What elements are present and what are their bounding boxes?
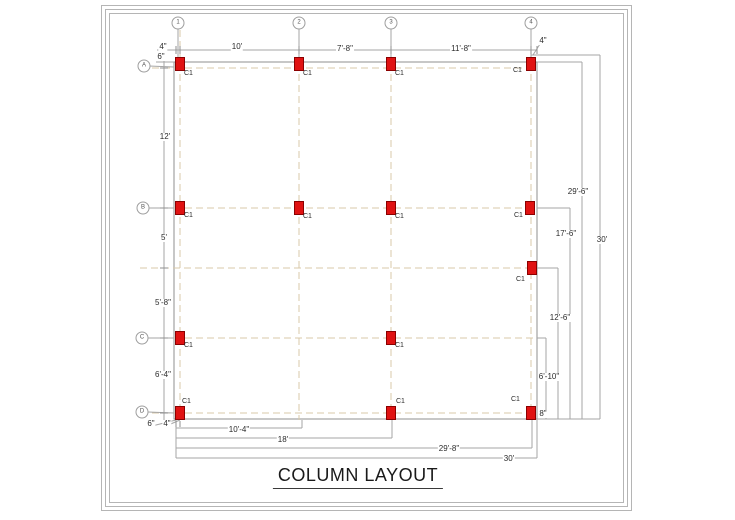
dimension-label-left: 5': [160, 234, 168, 242]
grid-bubble-1: 1: [172, 17, 185, 30]
dimension-label-bottom: 30': [503, 455, 515, 463]
grid-bubble-A: A: [138, 60, 151, 73]
dimension-label-top: 4": [158, 43, 167, 51]
dimension-label-left: 6": [156, 53, 165, 61]
drawing-title: COLUMN LAYOUT: [273, 465, 443, 489]
dimension-label-right: 8": [538, 410, 547, 418]
column-label: C1: [303, 213, 312, 220]
drawing-canvas: C1C1C1C1C1C1C1C1C1C1C1C1C1C14"10'7'-8"11…: [0, 0, 735, 520]
column-label: C1: [182, 398, 191, 405]
dimension-label-bottom: 10'-4": [228, 426, 250, 434]
dimension-label-left: 5'-8": [154, 299, 172, 307]
dimension-label-top: 10': [231, 43, 243, 51]
column-label: C1: [303, 70, 312, 77]
column-label: C1: [184, 212, 193, 219]
dimension-label-right: 6'-10": [538, 373, 560, 381]
grid-bubble-D: D: [136, 406, 149, 419]
column-label: C1: [184, 342, 193, 349]
column-label: C1: [395, 342, 404, 349]
dimension-label-top: 7'-8": [336, 45, 354, 53]
grid-bubble-3: 3: [385, 17, 398, 30]
dimension-label-left: 6": [146, 420, 155, 428]
dimension-label-left: 4": [162, 420, 171, 428]
dimension-label-right: 30': [596, 236, 608, 244]
grid-bubble-2: 2: [293, 17, 306, 30]
dimension-label-right: 12'-6": [549, 314, 571, 322]
dimension-label-top: 4": [538, 37, 547, 45]
column-label: C1: [184, 70, 193, 77]
grid-bubble-C: C: [136, 332, 149, 345]
column-label: C1: [513, 67, 522, 74]
dimension-label-left: 12': [159, 133, 171, 141]
dimension-label-bottom: 18': [277, 436, 289, 444]
column-label: C1: [395, 213, 404, 220]
column-label: C1: [516, 276, 525, 283]
column-label: C1: [511, 396, 520, 403]
drawing-labels-layer: C1C1C1C1C1C1C1C1C1C1C1C1C1C14"10'7'-8"11…: [0, 0, 735, 520]
grid-bubble-B: B: [137, 202, 150, 215]
grid-bubble-4: 4: [525, 17, 538, 30]
column-label: C1: [396, 398, 405, 405]
column-label: C1: [395, 70, 404, 77]
dimension-label-top: 11'-8": [450, 45, 472, 53]
column-label: C1: [514, 212, 523, 219]
dimension-label-left: 6'-4": [154, 371, 172, 379]
dimension-label-right: 29'-6": [567, 188, 589, 196]
dimension-label-right: 17'-6": [555, 230, 577, 238]
dimension-label-bottom: 29'-8": [438, 445, 460, 453]
